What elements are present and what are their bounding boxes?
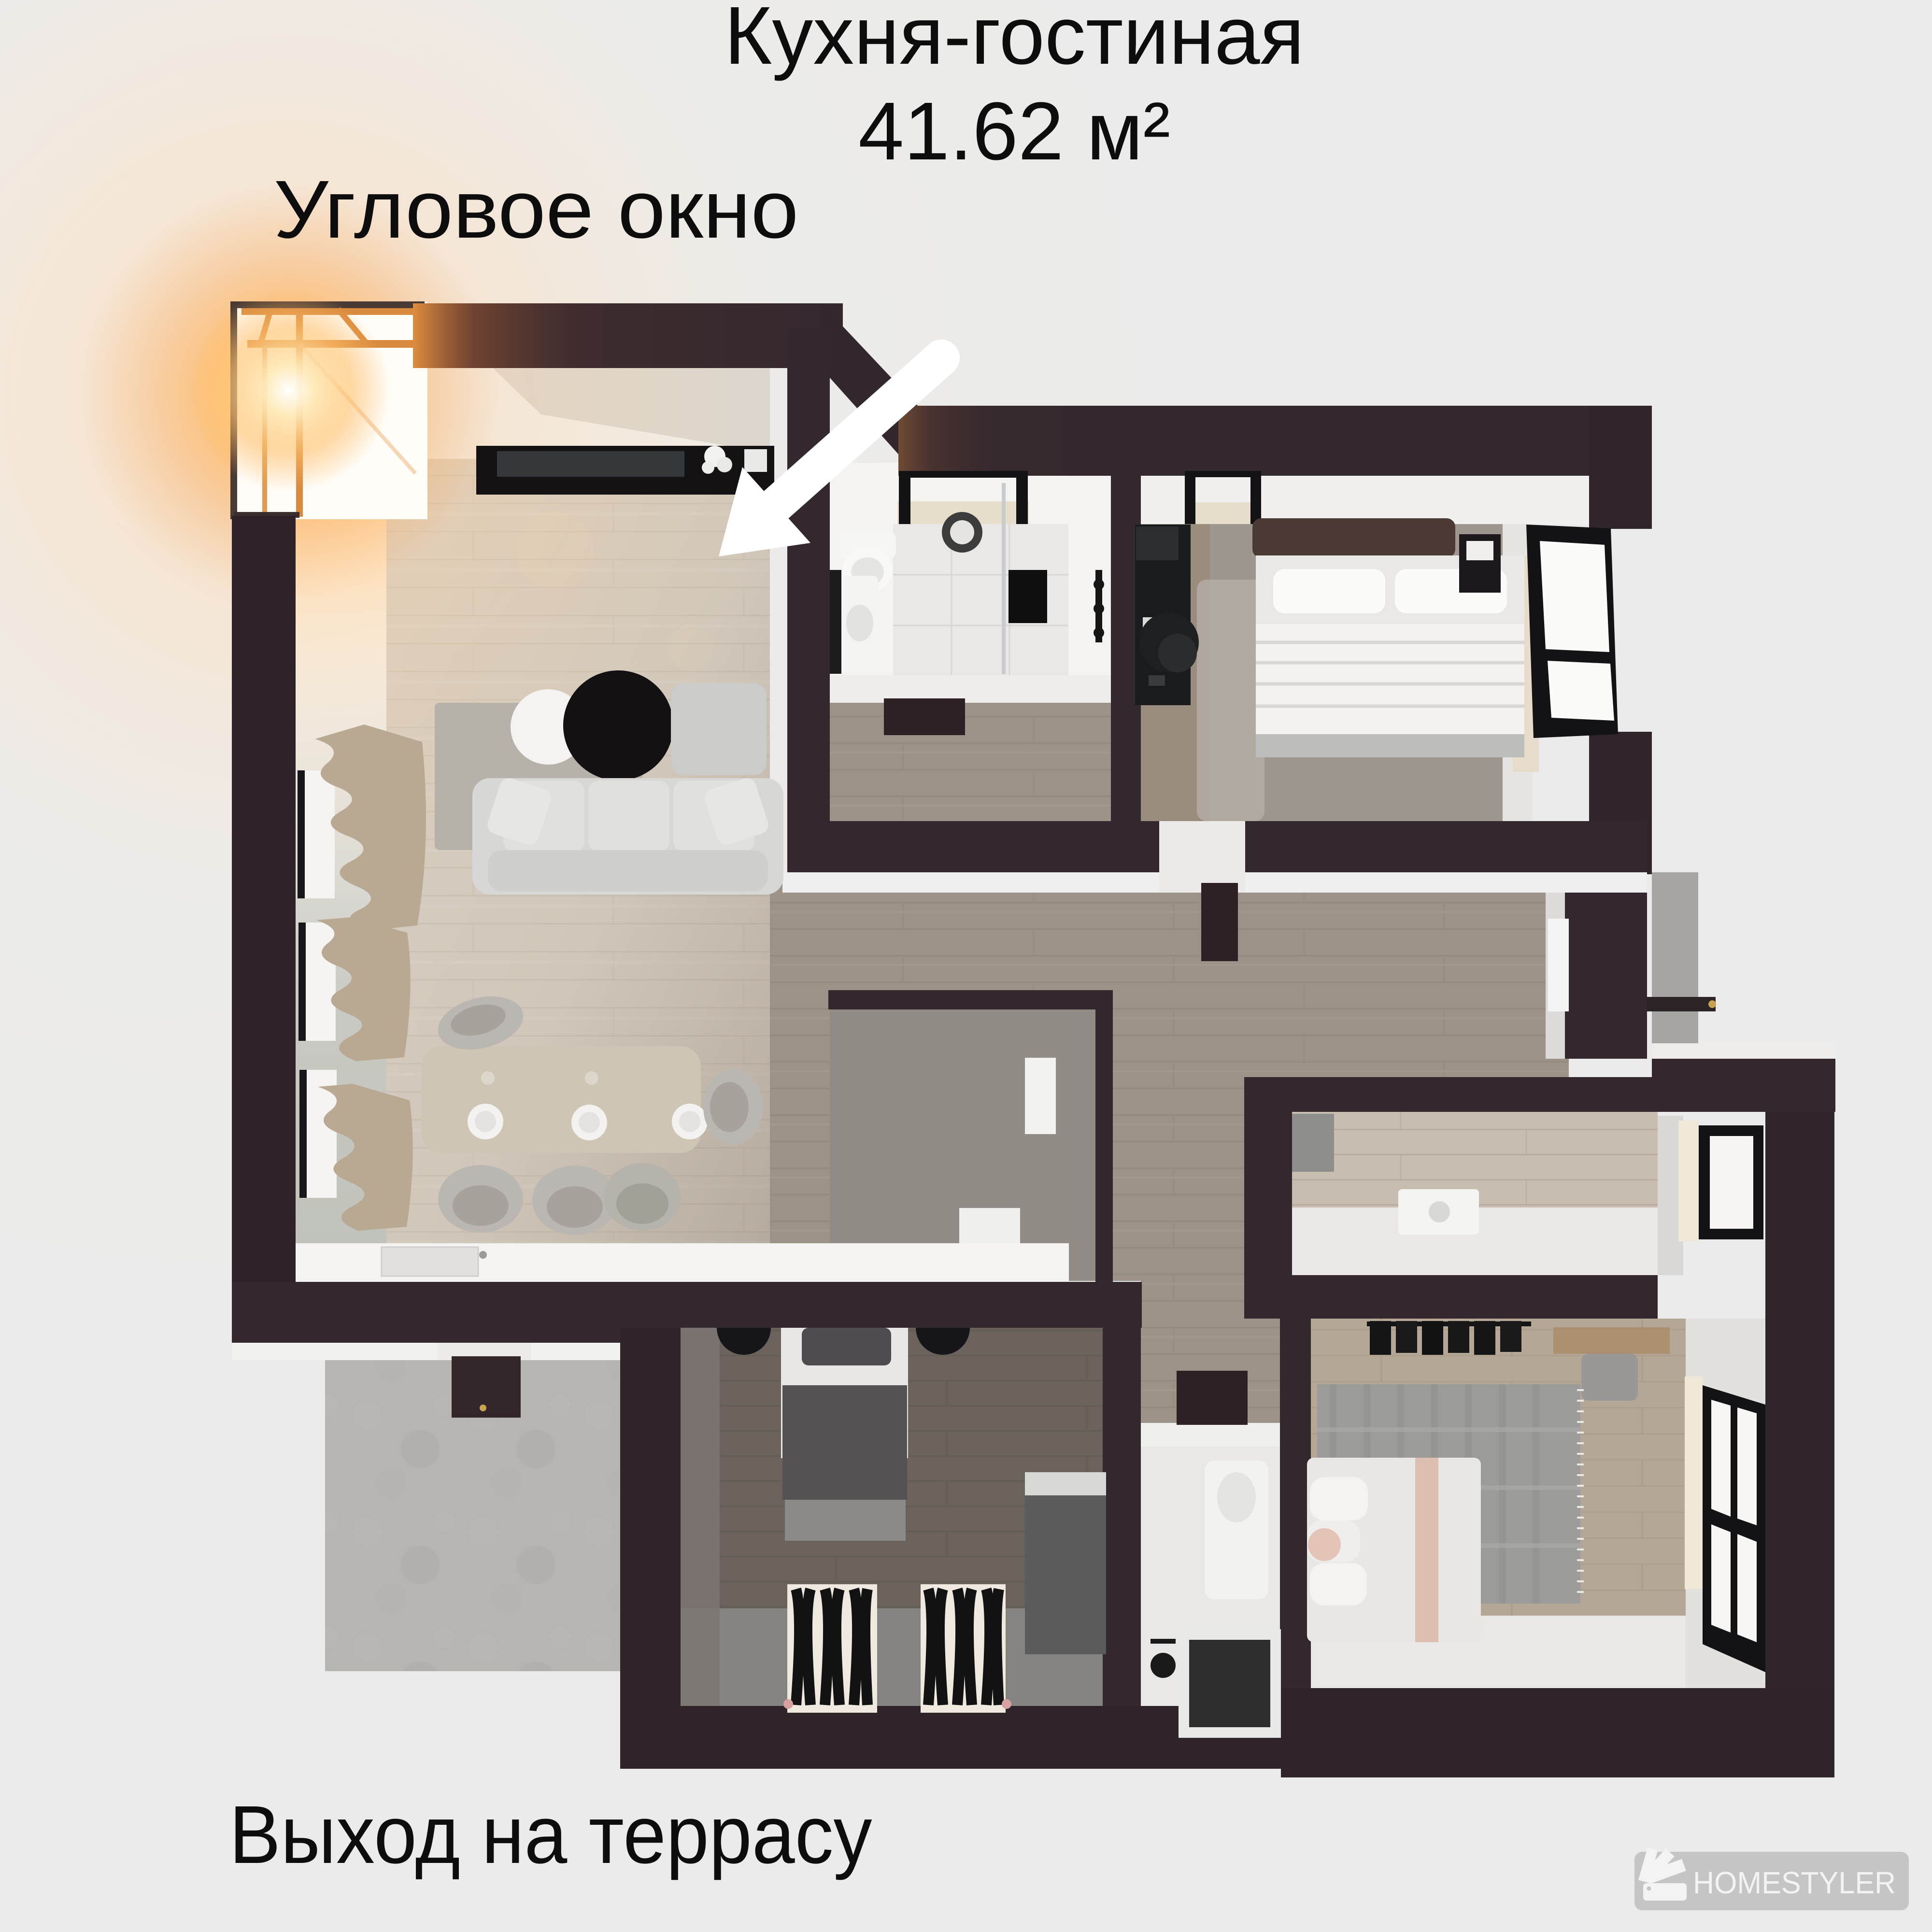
svg-text:HOMESTYLER: HOMESTYLER	[1693, 1865, 1896, 1900]
svg-text:Выход на террасу: Выход на террасу	[229, 1789, 872, 1881]
svg-text:41.62 м²: 41.62 м²	[858, 85, 1170, 177]
svg-text:Кухня-гостиная: Кухня-гостиная	[724, 0, 1305, 82]
svg-text:Угловое окно: Угловое окно	[274, 164, 799, 256]
